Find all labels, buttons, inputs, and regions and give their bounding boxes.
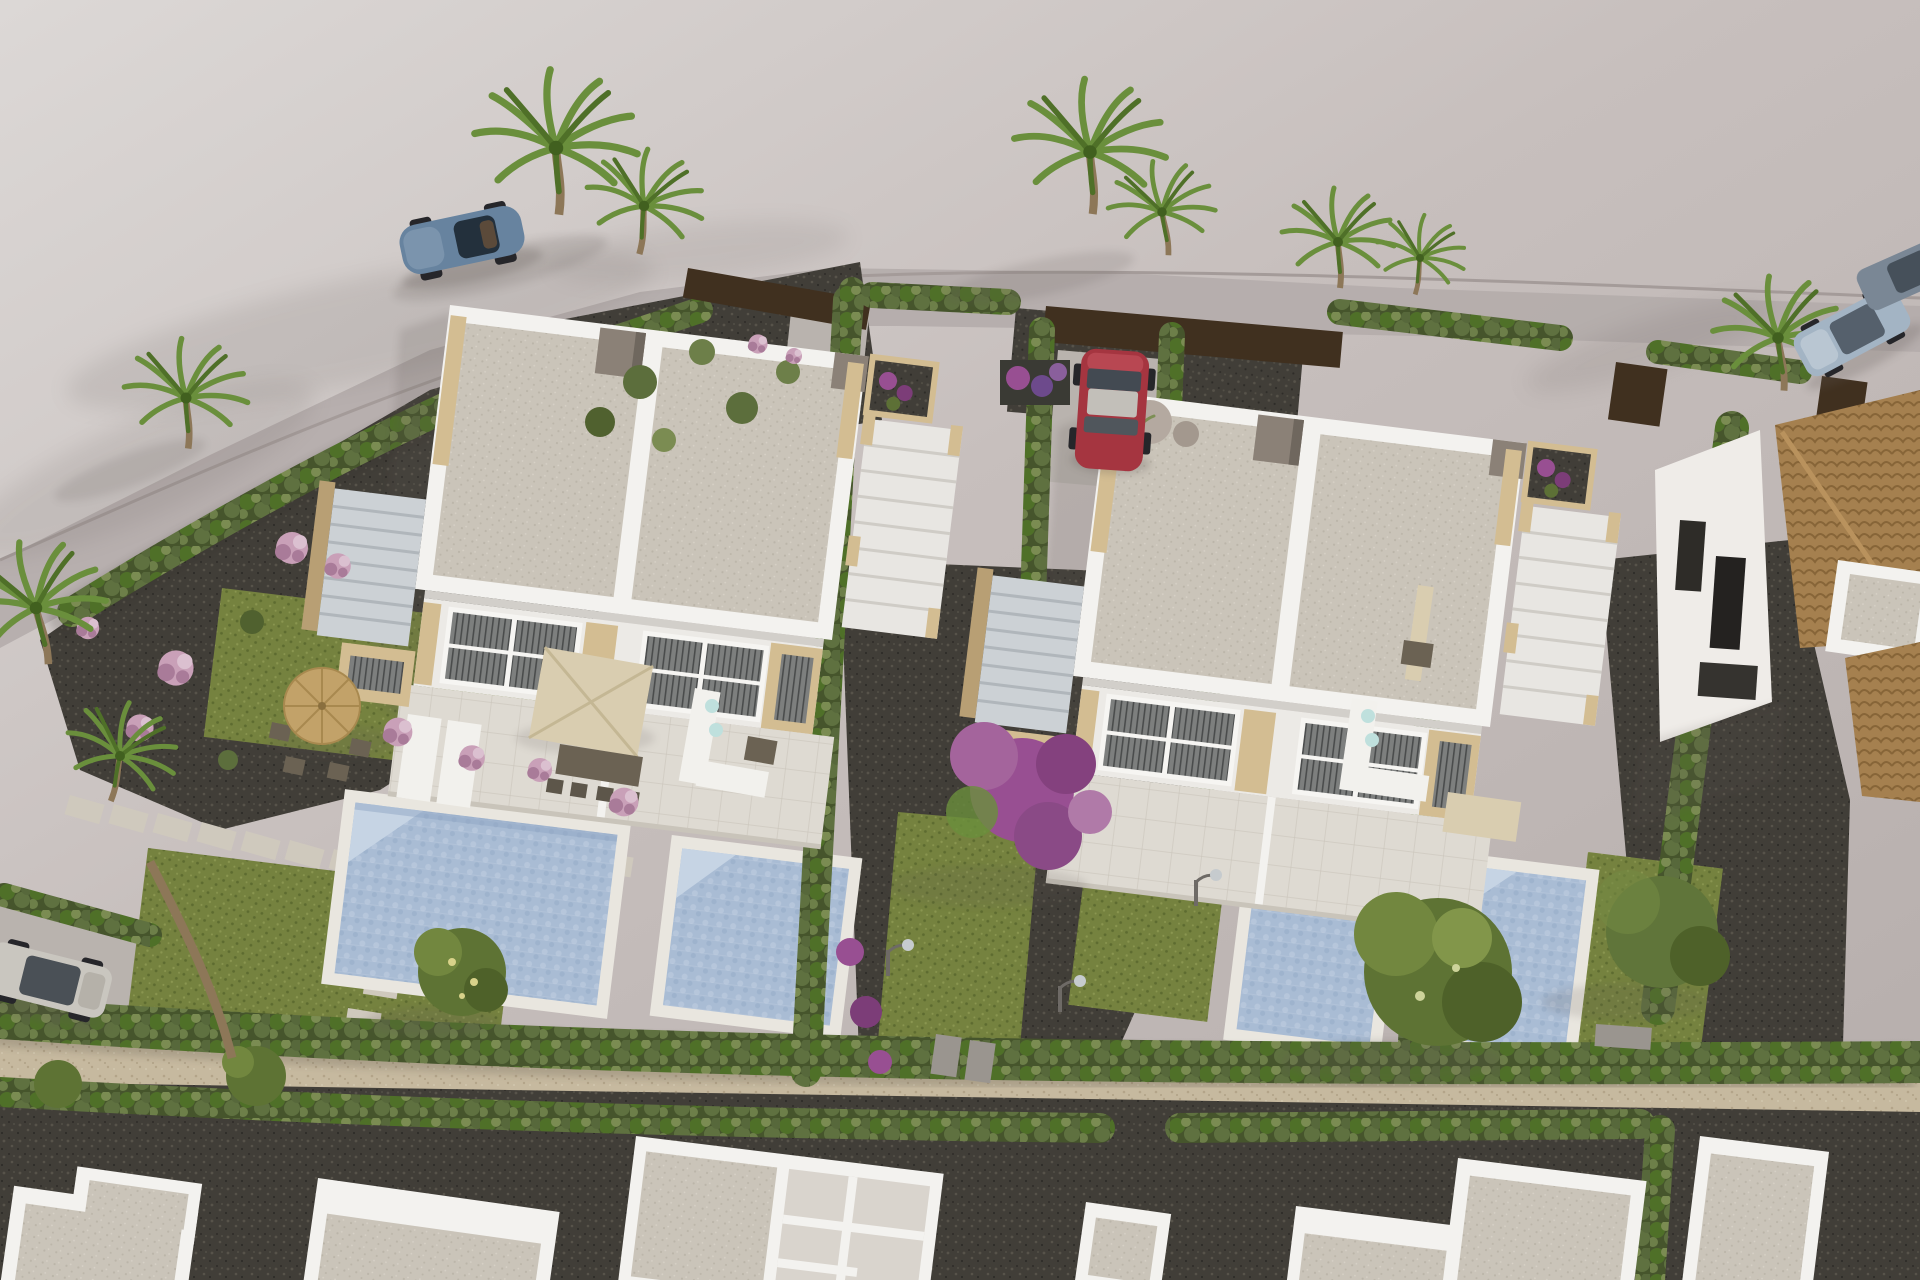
aerial-development-render (0, 0, 1920, 1280)
wall-gate-right-1 (1608, 362, 1668, 427)
hedge-bottom-vertical (1650, 1130, 1660, 1280)
lawn-center (876, 812, 1039, 1075)
render-stage (0, 0, 1920, 1280)
hedge-bottom-lower-2 (1180, 1124, 1640, 1128)
